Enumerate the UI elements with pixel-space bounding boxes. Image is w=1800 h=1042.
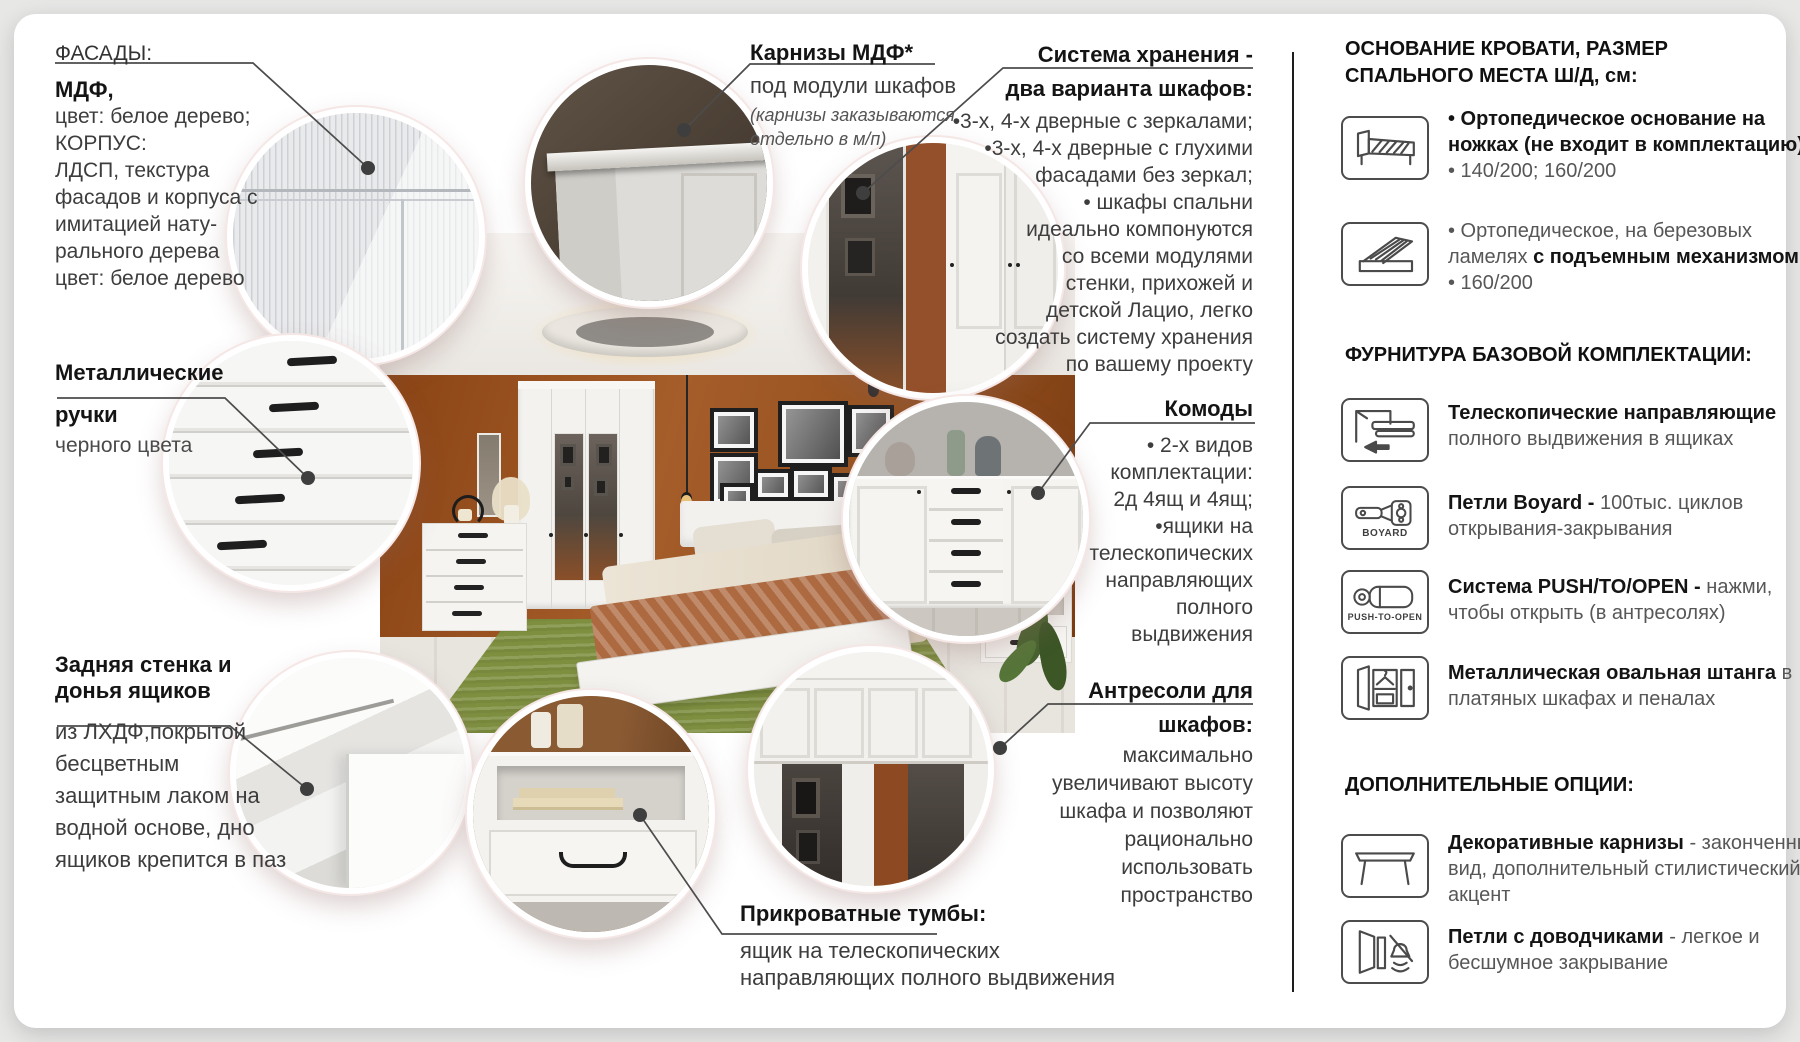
storage-line: фасадами без зеркал; [923, 162, 1253, 189]
push-to-open-icon: PUSH-TO-OPEN [1341, 570, 1429, 634]
options-section-title: ДОПОЛНИТЕЛЬНЫЕ ОПЦИИ: [1345, 772, 1634, 799]
antresol-callout: Антресоли для шкафов: максимально увелич… [1013, 678, 1253, 910]
antresol-title2: шкафов: [1013, 712, 1253, 738]
boyard-hinge-icon: BOYARD [1341, 486, 1429, 550]
vase [504, 505, 519, 525]
storage-line: детской Лацио, легко [923, 297, 1253, 324]
facade-line: рального дерева [55, 238, 258, 265]
bedside-tumba-circle [467, 690, 715, 938]
storage-line: стенки, прихожей и [923, 270, 1253, 297]
komod-line: •ящики на [1033, 513, 1253, 540]
antresol-line: рационально [1013, 826, 1253, 854]
facade-line: цвет: белое дерево; [55, 103, 258, 130]
backwall-line: ящиков крепится в паз [55, 844, 286, 876]
pendant-cord [686, 375, 688, 497]
komod-line: полного [1033, 594, 1253, 621]
panel-divider [1292, 52, 1294, 992]
backwall-line: бесцветным [55, 748, 286, 780]
soft-close-hinge-icon [1341, 920, 1429, 984]
bed-section-title: ОСНОВАНИЕ КРОВАТИ, РАЗМЕР СПАЛЬНОГО МЕСТ… [1345, 36, 1668, 90]
backwall-title2: донья ящиков [55, 678, 286, 704]
fitting-item: Телескопические направляющие полного выд… [1448, 400, 1793, 452]
tumba-line: направляющих полного выдвижения [740, 964, 1115, 991]
facade-callout: ФАСАДЫ: МДФ, цвет: белое дерево; КОРПУС:… [55, 40, 258, 292]
antresol-title: Антресоли для [1013, 678, 1253, 704]
storage-callout: Система хранения - два варианта шкафов: … [923, 42, 1253, 378]
picture-frame [778, 401, 848, 467]
fitting-item: Система PUSH/TO/OPEN - нажми, чтобы откр… [1448, 574, 1793, 626]
komod-line: направляющих [1033, 567, 1253, 594]
backwall-line: защитным лаком на [55, 780, 286, 812]
storage-line: идеально компонуются [923, 216, 1253, 243]
fittings-section-title: ФУРНИТУРА БАЗОВОЙ КОМПЛЕКТАЦИИ: [1345, 342, 1752, 369]
fitting-item: Петли Boyard - 100тыс. циклов открывания… [1448, 490, 1793, 542]
oval-rod-icon [1341, 656, 1429, 720]
antresol-line: увеличивают высоту [1013, 770, 1253, 798]
facade-line: КОРПУС: [55, 130, 258, 157]
storage-line: создать систему хранения [923, 324, 1253, 351]
backwall-callout: Задняя стенка и донья ящиков из ЛХДФ,пок… [55, 652, 286, 876]
storage-line: • шкафы спальни [923, 189, 1253, 216]
facade-title: МДФ, [55, 77, 258, 103]
handles-title: Металлические [55, 360, 223, 386]
komod-line: 2д 4ящ и 4ящ; [1033, 486, 1253, 513]
facade-line: имитацией нату- [55, 211, 258, 238]
tumba-line: ящик на телескопических [740, 937, 1115, 964]
storage-line: •3-х, 4-х дверные с зеркалами; [923, 108, 1253, 135]
tumba-title: Прикроватные тумбы: [740, 901, 1115, 927]
antresol-line: шкафа и позволяют [1013, 798, 1253, 826]
handles-callout: Металлические ручки черного цвета [55, 360, 223, 459]
antresol-line: максимально [1013, 742, 1253, 770]
picture-frame [790, 467, 832, 501]
backwall-line: из ЛХДФ,покрытой [55, 716, 286, 748]
ceiling-light-core [576, 317, 714, 347]
facade-line: ЛДСП, текстура [55, 157, 258, 184]
facade-label: ФАСАДЫ: [55, 40, 258, 67]
push-to-open-label: PUSH-TO-OPEN [1348, 612, 1423, 622]
storage-line: •3-х, 4-х дверные с глухими [923, 135, 1253, 162]
antresol-line: использовать [1013, 854, 1253, 882]
dresser [422, 523, 527, 631]
bed-orthopedic-icon [1341, 116, 1429, 180]
antresol-circle [748, 646, 994, 892]
infographic-page: ФАСАДЫ: МДФ, цвет: белое дерево; КОРПУС:… [0, 0, 1800, 1042]
bed-item: • Ортопедическое основание на ножках (не… [1448, 106, 1793, 184]
facade-line: фасадов и корпуса с [55, 184, 258, 211]
storage-line: со всеми модулями [923, 243, 1253, 270]
option-item: Петли с доводчиками - легкое и бесшумное… [1448, 924, 1793, 976]
handles-body: черного цвета [55, 432, 223, 459]
fitting-item: Металлическая овальная штанга в платяных… [1448, 660, 1793, 712]
handles-title2: ручки [55, 402, 223, 428]
backwall-title: Задняя стенка и [55, 652, 286, 678]
decorative-cornice-icon [1341, 834, 1429, 898]
boyard-label: BOYARD [1362, 529, 1407, 539]
komod-line: телескопических [1033, 540, 1253, 567]
facade-line: цвет: белое дерево [55, 265, 258, 292]
table-lamp-shade [458, 509, 472, 521]
picture-frame [754, 469, 792, 501]
bed-item: • Ортопедическое, на березовых ламелях с… [1448, 218, 1793, 296]
komod-line: выдвижения [1033, 621, 1253, 648]
komod-callout: Комоды • 2-х видов комплектации: 2д 4ящ … [1033, 396, 1253, 648]
backwall-line: водной основе, дно [55, 812, 286, 844]
picture-frame [710, 408, 758, 452]
storage-line: по вашему проекту [923, 351, 1253, 378]
facade-texture-circle [227, 107, 485, 365]
komod-title: Комоды [1033, 396, 1253, 422]
tumba-callout: Прикроватные тумбы: ящик на телескопичес… [740, 901, 1115, 991]
telescopic-rails-icon [1341, 398, 1429, 462]
bed-lift-icon [1341, 222, 1429, 286]
cornice-circle [525, 59, 773, 307]
komod-line: • 2-х видов [1033, 432, 1253, 459]
komod-line: комплектации: [1033, 459, 1253, 486]
storage-title2: два варианта шкафов: [923, 76, 1253, 102]
storage-title: Система хранения - [923, 42, 1253, 68]
option-item: Декоративные карнизы - законченный вид, … [1448, 830, 1793, 908]
